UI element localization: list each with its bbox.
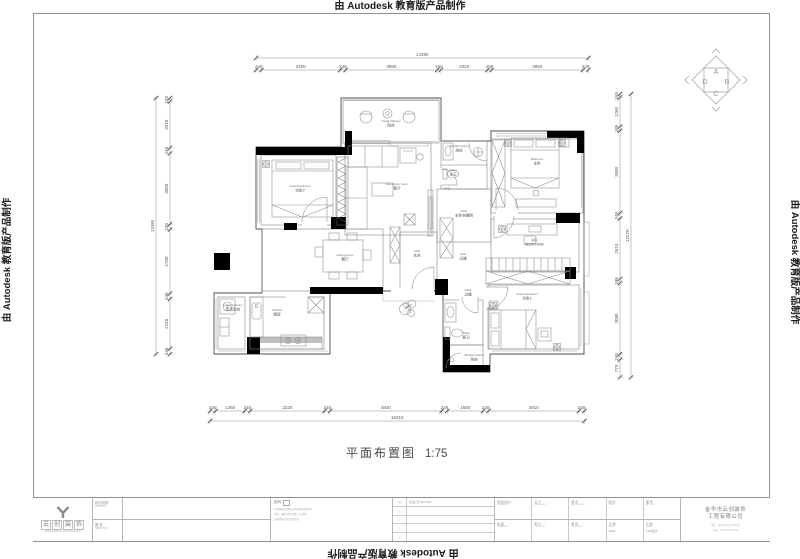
revision-row-content — [407, 533, 494, 541]
dim-label: 4830 — [381, 405, 392, 410]
revision-row: △ — [393, 524, 494, 533]
dim-label: 16210 — [391, 415, 404, 420]
dim-label: 240 — [614, 211, 619, 219]
room-label-cn: 客厅 — [393, 186, 401, 191]
revision-row-content — [407, 507, 494, 515]
dim-label: 240 — [578, 405, 586, 410]
dim-label: 240 — [582, 64, 590, 69]
title-block-blank-fields — [123, 498, 271, 541]
stamp-title: 图例 — [274, 500, 389, 506]
field-cell: 设 计DESIGN BY — [532, 498, 569, 519]
plan-title-text: 平面布置图 — [346, 446, 416, 460]
watermark-left: 由 Autodesk 教育版产品制作 — [1, 197, 13, 322]
dim-label: 180 — [614, 124, 619, 132]
dim-label: 2610 — [614, 243, 619, 254]
dim-label: 1260 — [225, 405, 236, 410]
stamp-note-line: 复制、翻印或转交第三方使用 — [274, 512, 389, 516]
room-label-en: Shower Room — [449, 144, 469, 148]
room-label-en: Toilet — [449, 168, 456, 172]
dim-label: 150 — [614, 91, 619, 99]
room-label-cn: 客卫 — [462, 335, 470, 340]
room-label-en: Bedroom — [531, 157, 544, 161]
company-name-line2: 工程有限公司 — [708, 514, 743, 521]
revision-row-content — [407, 516, 494, 524]
dim-label: 240 — [255, 64, 263, 69]
room-label-cn: 玄关 — [413, 253, 421, 258]
logo-char: 云 — [41, 520, 51, 530]
logo-char: 饰 — [74, 520, 84, 530]
dim-label: 1260 — [614, 107, 619, 118]
company-name-line1: 金华市云创装饰 — [705, 507, 746, 514]
revision-row-content — [407, 524, 494, 532]
logo-char: 装 — [63, 520, 73, 530]
title-block-labels: 项目名称 PROJECT 图 名 DRAW TITL — [93, 498, 123, 541]
field-cell: 制 图DRAWN BY — [495, 520, 532, 541]
plan-title-scale: 1:75 — [425, 448, 447, 460]
field-cell: 图 别DWG — [607, 498, 644, 519]
dim-label: 3400 — [296, 64, 307, 69]
field-label-en: CHECK BY — [571, 526, 605, 528]
stamp-notes: 图例 凡本图纸未经本公司书面同意不得复制、翻印或转交第三方使用违者将追究其法律责… — [271, 498, 393, 541]
room-label-cn: 主卫 — [449, 172, 457, 177]
field-cell: 比 例SCALE1:80设计 — [644, 520, 680, 541]
dim-label: 160 — [435, 64, 443, 69]
dim-label: 3080 — [614, 313, 619, 324]
orientation-letter-b: B — [724, 77, 729, 86]
logo-tagline: YUNCHUANG DECORATION — [44, 531, 81, 533]
room-label-cn: 主卧衣帽间 — [455, 213, 474, 218]
logo-name: 云创装饰 — [41, 520, 84, 530]
revision-header: №修改记录 RECORD — [393, 498, 494, 507]
drawing-sheet: 由 Autodesk 教育版产品制作 由 Autodesk 教育版产品制作 由 … — [0, 0, 800, 559]
drawing-label-en: DRAW TITL — [95, 527, 121, 530]
room-label-en: Shower Room — [464, 353, 484, 357]
dim-chain-bottom: 2401260240322024048302401550240391024016… — [208, 405, 587, 424]
fields-row: 项目负责人T.PERSON设 计DESIGN BY审 定APPROVE BY图 … — [495, 498, 680, 519]
dim-label: 240 — [164, 347, 169, 355]
dim-label: 14390 — [416, 52, 429, 57]
room-label-en: Dining room — [337, 253, 354, 257]
room-label-en: Aisle — [460, 252, 467, 256]
room-label-cn: 过道 — [464, 292, 472, 297]
dim-label: 3910 — [529, 405, 540, 410]
dim-label: 11090 — [150, 220, 155, 233]
room-label-en: 书房 — [531, 237, 537, 242]
field-label-en: APPROVE BY — [571, 504, 605, 506]
watermark-bottom: 由 Autodesk 教育版产品制作 — [327, 547, 458, 559]
dim-label: 240 — [339, 64, 347, 69]
interior-dimensions: 770 — [444, 187, 450, 191]
field-cell: 审 核CHECK BY — [569, 520, 606, 541]
stamp-note-line: 违者将追究其法律责任 — [274, 517, 389, 521]
dim-label: 770 — [614, 364, 619, 372]
dim-label: 3220 — [282, 405, 293, 410]
dim-label: 2020 — [459, 64, 470, 69]
field-value: 2023 — [609, 529, 643, 533]
room-label-cn: 餐厅 — [341, 257, 349, 262]
dim-label: 180 — [614, 277, 619, 285]
room-labels: Living balcony阳台Guest bedroom次卧2Receptio… — [223, 119, 543, 362]
interior-dim-label: 770 — [444, 187, 450, 191]
room-label-cn: 主卧 — [533, 161, 541, 166]
room-label-cn: 次卧2 — [295, 188, 304, 193]
dim-label: 240 — [164, 146, 169, 154]
dim-label: 2010 — [164, 119, 169, 130]
room-label-en: Kitchen — [272, 308, 283, 312]
dim-label: 240 — [614, 353, 619, 361]
room-label-cn: 阳台 — [387, 123, 395, 128]
field-cell: 图 号DET NO. — [644, 498, 680, 519]
room-label-en: Reception room — [386, 182, 408, 186]
field-cell: 客 户CLIENT BY — [532, 520, 569, 541]
logo-mark-icon — [56, 506, 70, 519]
dim-label: 12270 — [625, 229, 630, 242]
company-logo: 云创装饰 YUNCHUANG DECORATION — [33, 498, 93, 541]
drawing-label: 图 名 DRAW TITL — [93, 519, 122, 541]
watermark-top: 由 Autodesk 教育版产品制作 — [334, 0, 465, 12]
revision-row: △ — [393, 533, 494, 541]
dim-label: 240 — [324, 405, 332, 410]
room-label-cn: 过道 — [459, 256, 467, 261]
stamp-note-line: 凡本图纸未经本公司书面同意不得 — [274, 507, 389, 511]
dim-label: 150 — [164, 95, 169, 103]
plan-title: 平面布置图 1:75 — [346, 446, 447, 460]
field-label-en: CLIENT BY — [534, 526, 568, 528]
room-label-cn: 淋浴 — [470, 357, 478, 362]
room-label-cn: 淋浴 — [455, 148, 463, 153]
dim-label: 1550 — [460, 405, 471, 410]
dim-label: 180 — [486, 64, 494, 69]
dim-chain-top: 240340024039601602020180395024014390 — [254, 52, 591, 74]
revision-mark-icon: △ — [393, 507, 407, 515]
field-label-en: DWG — [609, 504, 643, 506]
dim-label: 3960 — [386, 64, 397, 69]
revision-mark-icon: △ — [393, 524, 407, 532]
room-label-en: Aisle — [414, 249, 421, 253]
dim-label: 240 — [164, 292, 169, 300]
fields-row: 制 图DRAWN BY客 户CLIENT BY审 核CHECK BY日 期DAT… — [495, 519, 680, 541]
dim-label: 2150 — [164, 318, 169, 329]
dim-label: 240 — [244, 405, 252, 410]
room-label-en: Aisle — [461, 209, 468, 213]
company-cell: 金华市云创装饰 工程有限公司 地址：金华市金东区XXXX号 电话：0579-XX… — [681, 498, 770, 541]
orientation-symbol: A B C D — [685, 49, 747, 111]
room-label-en: Guest bedroom — [289, 184, 311, 188]
watermark-right: 由 Autodesk 教育版产品制作 — [789, 200, 800, 325]
title-block: 云创装饰 YUNCHUANG DECORATION 项目名称 PROJECT 图… — [33, 497, 770, 541]
field-cell: 日 期DATE2023 — [607, 520, 644, 541]
orientation-letter-d: D — [702, 77, 708, 86]
company-contact1: 地址：金华市金东区XXXX号 — [711, 523, 740, 527]
floor-plan-drawing: 由 Autodesk 教育版产品制作 由 Autodesk 教育版产品制作 由 … — [0, 0, 800, 559]
field-label-en: DATE — [609, 526, 643, 528]
revision-row: △ — [393, 516, 494, 525]
revision-mark-icon: △ — [393, 533, 407, 541]
dim-label: 3950 — [532, 64, 543, 69]
logo-char: 创 — [52, 520, 62, 530]
field-label-en: DET NO. — [646, 504, 680, 506]
room-label-en: Guest bedroom — [516, 292, 538, 296]
field-label-en: T.PERSON — [497, 504, 531, 506]
room-label-en: Aisle — [465, 288, 472, 292]
field-cell: 项目负责人T.PERSON — [495, 498, 532, 519]
field-label-en: SCALE — [646, 526, 680, 528]
dim-chain-left: 150201024030602402760240215024011090 — [150, 95, 174, 356]
dim-label: 2760 — [164, 256, 169, 267]
room-label-cn: 生活阳台 — [226, 307, 241, 312]
revision-table: №修改记录 RECORD△△△△ — [393, 498, 495, 541]
revision-no-header: № — [393, 498, 407, 506]
revision-header-label: 修改记录 RECORD — [407, 498, 494, 506]
room-label-en: Toilet — [462, 331, 469, 335]
field-value: 1:80设计 — [646, 529, 680, 533]
room-label-cn: BEDROOM — [524, 243, 543, 247]
project-label: 项目名称 PROJECT — [93, 498, 122, 519]
company-contact2: 电话：0579-XXXXXXXX — [713, 528, 738, 532]
room-label-en: Living balcony — [381, 119, 401, 123]
room-label-en: Living balcony — [223, 303, 243, 307]
room-label-cn: 次卧1 — [522, 296, 531, 301]
dim-label: 240 — [441, 405, 449, 410]
revision-row: △ — [393, 507, 494, 516]
room-label-cn: 厨房 — [273, 312, 281, 317]
dim-label: 240 — [209, 405, 217, 410]
dim-label: 3560 — [614, 166, 619, 177]
orientation-letter-c: C — [713, 89, 719, 98]
dim-label: 240 — [482, 405, 490, 410]
dim-label: 240 — [164, 223, 169, 231]
field-label-en: DESIGN BY — [534, 504, 568, 506]
project-label-en: PROJECT — [95, 505, 121, 508]
dim-chain-right: 150126018035602402610180308024077012270 — [614, 91, 634, 379]
stamp-box-icon — [283, 500, 290, 506]
orientation-letter-a: A — [713, 67, 718, 76]
dimension-chains: 2403400240396016020201803950240143902401… — [150, 52, 634, 424]
revision-mark-icon: △ — [393, 516, 407, 524]
title-block-fields: 项目负责人T.PERSON设 计DESIGN BY审 定APPROVE BY图 … — [495, 498, 681, 541]
dim-label: 3060 — [164, 183, 169, 194]
field-cell: 审 定APPROVE BY — [569, 498, 606, 519]
field-label-en: DRAWN BY — [497, 526, 531, 528]
